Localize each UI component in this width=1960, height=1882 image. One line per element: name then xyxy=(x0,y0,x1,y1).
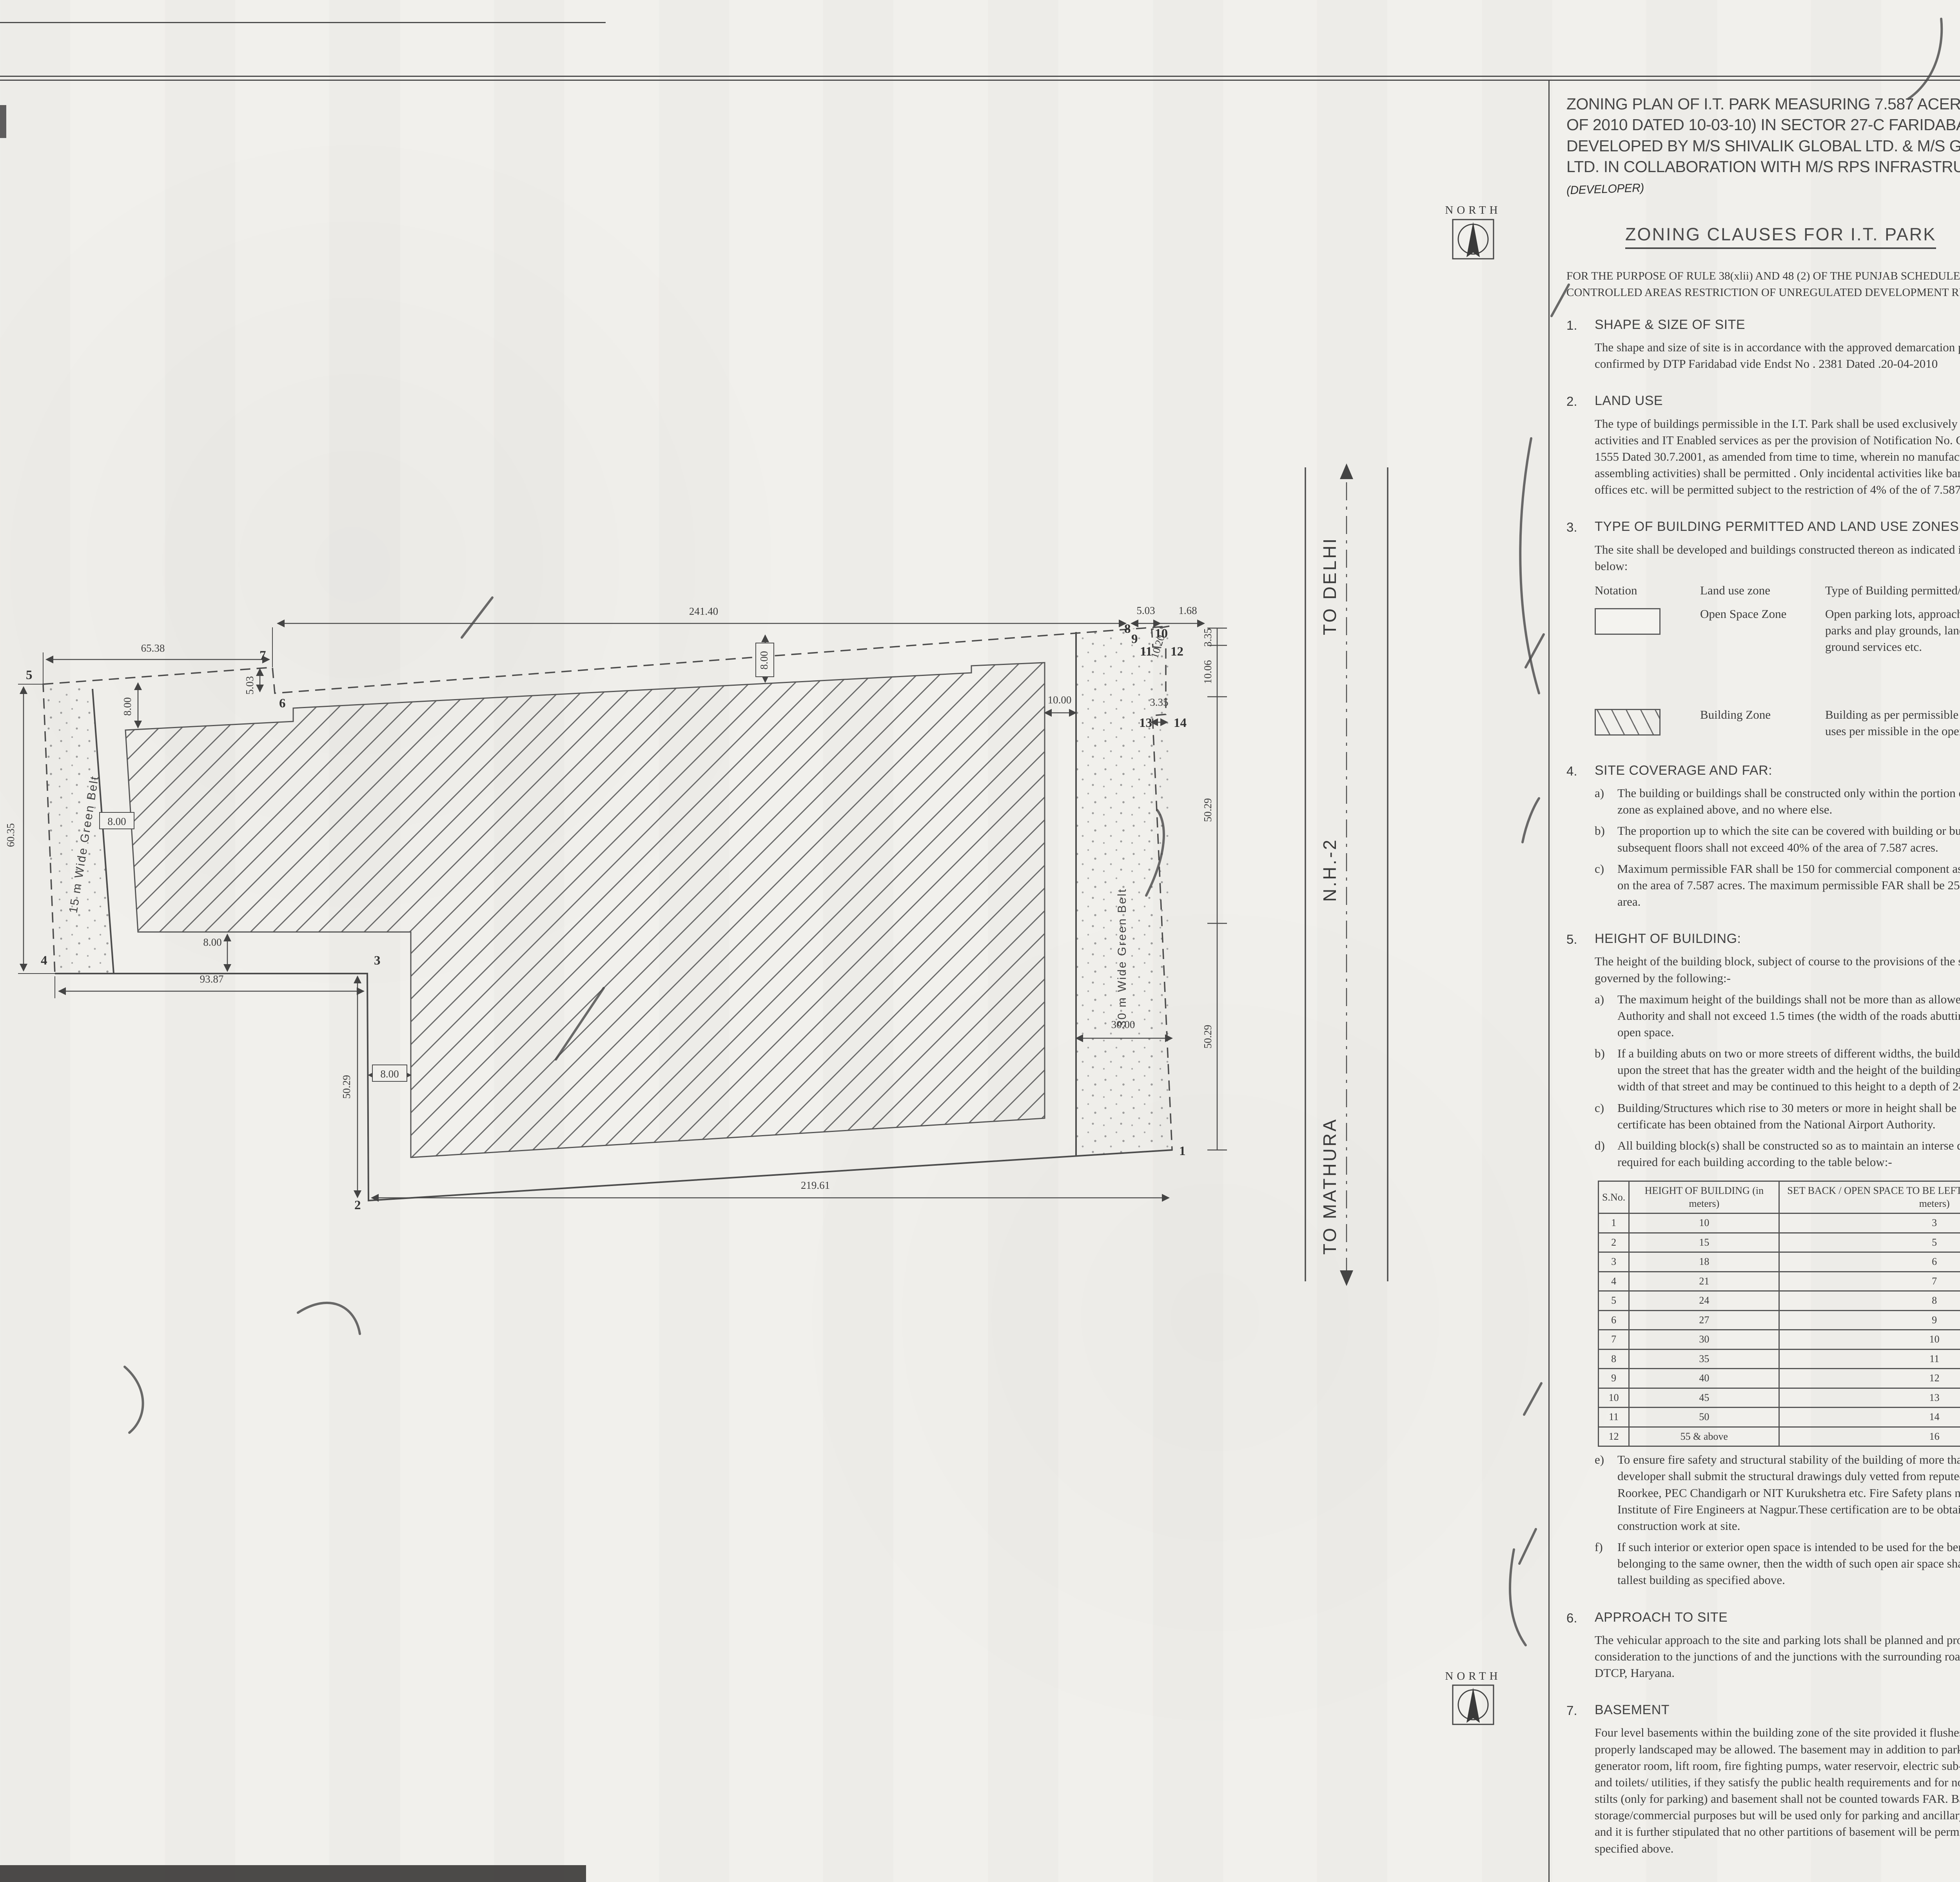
item-text: The proportion up to which the site can … xyxy=(1617,823,1960,856)
setback-table: S.No. HEIGHT OF BUILDING (in meters) SET… xyxy=(1598,1181,1960,1447)
clause-2-body: The type of buildings permissible in the… xyxy=(1595,416,1960,498)
dim-top-main: 241.40 xyxy=(689,605,718,617)
page-title: ZONING CLAUSES FOR I.T. PARK xyxy=(1625,224,1936,249)
title-block: ZONING PLAN OF I.T. PARK MEASURING 7.587… xyxy=(1566,94,1960,198)
dim-right-b: 10.06 xyxy=(1202,660,1214,684)
dim-sb-west: 8.00 xyxy=(107,816,126,827)
vertex-12: 12 xyxy=(1171,645,1183,659)
clause-1: 1. SHAPE & SIZE OF SITE The shape and si… xyxy=(1566,316,1960,377)
vertex-6: 6 xyxy=(279,696,286,710)
open-space-swatch xyxy=(1595,608,1661,635)
clauses-column-1: ZONING PLAN OF I.T. PARK MEASURING 7.587… xyxy=(1548,80,1960,1862)
vertex-11: 11 xyxy=(1140,645,1152,659)
dim-sb-topright: 8.00 xyxy=(758,651,770,669)
road-label-highway: N.H.-2 xyxy=(1319,838,1340,902)
table-row: 94012 xyxy=(1599,1369,1960,1388)
dim-right-a: 3.35 xyxy=(1202,628,1214,647)
clause-5c: c)Building/Structures which rise to 30 m… xyxy=(1595,1100,1960,1133)
vertex-4: 4 xyxy=(41,954,47,968)
landuse-header: Land use zone xyxy=(1700,582,1820,599)
building-zone-swatch xyxy=(1595,709,1661,736)
setback-h3: SET BACK / OPEN SPACE TO BE LEFT AROUND … xyxy=(1779,1181,1960,1213)
table-row: 2155 xyxy=(1599,1233,1960,1252)
clause-5-intro: The height of the building block, subjec… xyxy=(1595,953,1960,986)
item-text: All building block(s) shall be construct… xyxy=(1617,1137,1960,1170)
building-zone-desc: Building as per permissible land use in … xyxy=(1825,707,1960,739)
clause-3-number: 3. xyxy=(1566,518,1592,746)
preamble: FOR THE PURPOSE OF RULE 38(xlii) AND 48 … xyxy=(1566,268,1960,301)
table-row: 6279 xyxy=(1599,1310,1960,1330)
north-label-bottom: NORTH xyxy=(1445,1670,1501,1682)
item-text: The building or buildings shall be const… xyxy=(1617,785,1960,818)
table-row: 73010 xyxy=(1599,1330,1960,1350)
clause-5e: e)To ensure fire safety and structural s… xyxy=(1595,1451,1960,1534)
clause-3: 3. TYPE OF BUILDING PERMITTED AND LAND U… xyxy=(1566,518,1960,746)
vertex-5: 5 xyxy=(26,668,33,682)
dim-right-e: 50.29 xyxy=(1202,1025,1214,1049)
item-label: a) xyxy=(1595,785,1616,818)
clause-5: 5. HEIGHT OF BUILDING: The height of the… xyxy=(1566,930,1960,1593)
table-row: 83511 xyxy=(1599,1349,1960,1369)
dim-mid-vert: 50.29 xyxy=(341,1075,352,1099)
clause-1-body: The shape and size of site is in accorda… xyxy=(1595,339,1960,372)
item-text: If a building abuts on two or more stree… xyxy=(1617,1045,1960,1095)
table-row: 5248 xyxy=(1599,1291,1960,1311)
dim-top-right-a: 5.03 xyxy=(1136,605,1155,616)
site-plan-drawing: 15 m Wide Green Belt 30 m Wide Green Bel… xyxy=(0,0,1548,1882)
dim-left-side: 60.35 xyxy=(5,823,16,847)
north-label-top: NORTH xyxy=(1445,204,1501,216)
clause-4-number: 4. xyxy=(1566,761,1592,915)
main-heading-wrap: ZONING CLAUSES FOR I.T. PARK xyxy=(1625,222,1960,246)
green-belt-east-label: 30 m Wide Green Belt xyxy=(1116,888,1129,1027)
item-label: b) xyxy=(1595,1045,1616,1095)
clause-7-number: 7. xyxy=(1566,1701,1592,1861)
sheet-title: ZONING PLAN OF I.T. PARK MEASURING 7.587… xyxy=(1566,95,1960,176)
clause-1-title: SHAPE & SIZE OF SITE xyxy=(1595,316,1960,334)
vertex-9: 9 xyxy=(1131,632,1138,646)
clause-5-number: 5. xyxy=(1566,930,1592,1593)
item-label: e) xyxy=(1595,1451,1616,1534)
clause-3-title: TYPE OF BUILDING PERMITTED AND LAND USE … xyxy=(1595,518,1960,536)
clause-4b: b)The proportion up to which the site ca… xyxy=(1595,823,1960,856)
item-text: Building/Structures which rise to 30 met… xyxy=(1617,1100,1960,1133)
dim-bottom-main: 219.61 xyxy=(801,1179,830,1191)
north-arrow-bottom: NORTH xyxy=(1445,1670,1501,1724)
item-text: Maximum permissible FAR shall be 150 for… xyxy=(1617,861,1960,910)
clause-2: 2. LAND USE The type of buildings permis… xyxy=(1566,392,1960,503)
clause-5-title: HEIGHT OF BUILDING: xyxy=(1595,930,1960,948)
dim-right-f: 3.35 xyxy=(1150,696,1168,708)
notation-header: Notation xyxy=(1595,582,1695,599)
setback-h2: HEIGHT OF BUILDING (in meters) xyxy=(1629,1181,1779,1213)
table-row: 104513 xyxy=(1599,1388,1960,1408)
clause-1-number: 1. xyxy=(1566,316,1592,377)
notation-row-open-space: Open Space Zone Open parking lots, appro… xyxy=(1595,606,1960,655)
clause-7-body: Four level basements within the building… xyxy=(1595,1724,1960,1857)
vertex-1: 1 xyxy=(1179,1144,1186,1158)
item-label: a) xyxy=(1595,991,1616,1041)
clause-2-title: LAND USE xyxy=(1595,392,1960,410)
road-arrow-south xyxy=(1340,1270,1353,1286)
clause-7: 7. BASEMENT Four level basements within … xyxy=(1566,1701,1960,1861)
scanned-zoning-plan-sheet: { "title_block": { "title": "ZONING PLAN… xyxy=(0,0,1960,1882)
road-arrow-north xyxy=(1340,463,1353,479)
item-text: To ensure fire safety and structural sta… xyxy=(1617,1451,1960,1534)
clause-4a: a)The building or buildings shall be con… xyxy=(1595,785,1960,818)
clause-3-body: The site shall be developed and building… xyxy=(1595,541,1960,574)
vertex-13: 13 xyxy=(1139,716,1152,730)
clause-6: 6. APPROACH TO SITE The vehicular approa… xyxy=(1566,1608,1960,1686)
dim-sb-mid: 8.00 xyxy=(380,1068,399,1080)
clause-6-number: 6. xyxy=(1566,1608,1592,1686)
table-row: 1255 & above16 xyxy=(1599,1427,1960,1446)
dim-top-left: 65.38 xyxy=(141,642,165,654)
vertex-2: 2 xyxy=(354,1198,361,1212)
notation-row-building: Building Zone Building as per permissibl… xyxy=(1595,707,1960,739)
vertex-8: 8 xyxy=(1124,622,1131,636)
dim-sb-bottom: 8.00 xyxy=(203,936,221,948)
dim-gap-east: 10.00 xyxy=(1048,694,1072,706)
dim-right-d: 50.29 xyxy=(1202,798,1214,822)
setback-h1: S.No. xyxy=(1599,1181,1629,1213)
vertex-7: 7 xyxy=(260,649,266,663)
clause-6-body: The vehicular approach to the site and p… xyxy=(1595,1632,1960,1681)
clause-5f: f)If such interior or exterior open spac… xyxy=(1595,1539,1960,1588)
item-text: The maximum height of the buildings shal… xyxy=(1617,991,1960,1041)
clause-6-title: APPROACH TO SITE xyxy=(1595,1608,1960,1626)
item-text: If such interior or exterior open space … xyxy=(1617,1539,1960,1588)
clause-4-title: SITE COVERAGE AND FAR: xyxy=(1595,761,1960,779)
building-zone-label: Building Zone xyxy=(1700,707,1820,739)
open-space-zone-desc: Open parking lots, approach roads, roads… xyxy=(1825,606,1960,655)
table-row: 1103 xyxy=(1599,1213,1960,1233)
item-label: f) xyxy=(1595,1539,1616,1588)
clause-4: 4. SITE COVERAGE AND FAR: a)The building… xyxy=(1566,761,1960,915)
vertex-14: 14 xyxy=(1174,716,1187,730)
table-row: 115014 xyxy=(1599,1408,1960,1427)
clause-5a: a)The maximum height of the buildings sh… xyxy=(1595,991,1960,1041)
vertex-3: 3 xyxy=(374,954,381,968)
dim-jog-left: 5.03 xyxy=(244,676,256,694)
type-header: Type of Building permitted/pe rmissible … xyxy=(1825,582,1960,599)
clause-5b: b)If a building abuts on two or more str… xyxy=(1595,1045,1960,1095)
dim-belt-east-width: 30.00 xyxy=(1111,1019,1135,1030)
item-label: b) xyxy=(1595,823,1616,856)
clause-4c: c)Maximum permissible FAR shall be 150 f… xyxy=(1595,861,1960,910)
dim-top-right-b: 1.68 xyxy=(1178,605,1197,616)
item-label: c) xyxy=(1595,1100,1616,1133)
dim-bottom-left: 93.87 xyxy=(200,973,224,985)
item-label: d) xyxy=(1595,1137,1616,1170)
open-space-zone-label: Open Space Zone xyxy=(1700,606,1820,655)
table-row: 4217 xyxy=(1599,1272,1960,1291)
building-zone-hatched xyxy=(125,663,1045,1157)
clause-5d: d)All building block(s) shall be constru… xyxy=(1595,1137,1960,1170)
clause-7-title: BASEMENT xyxy=(1595,1701,1960,1719)
developer-annotation: (DEVELOPER) xyxy=(1566,180,1644,198)
item-label: c) xyxy=(1595,861,1616,910)
clause-2-number: 2. xyxy=(1566,392,1592,503)
table-row: 3186 xyxy=(1599,1252,1960,1272)
vertex-10: 10 xyxy=(1155,627,1168,641)
north-arrow-top: NORTH xyxy=(1445,204,1501,259)
dim-sb-top: 8.00 xyxy=(122,697,133,716)
road-label-to-mathura: TO MATHURA xyxy=(1319,1117,1340,1255)
road-label-to-delhi: TO DELHI xyxy=(1319,537,1340,635)
notation-header-row: Notation Land use zone Type of Building … xyxy=(1595,582,1960,599)
